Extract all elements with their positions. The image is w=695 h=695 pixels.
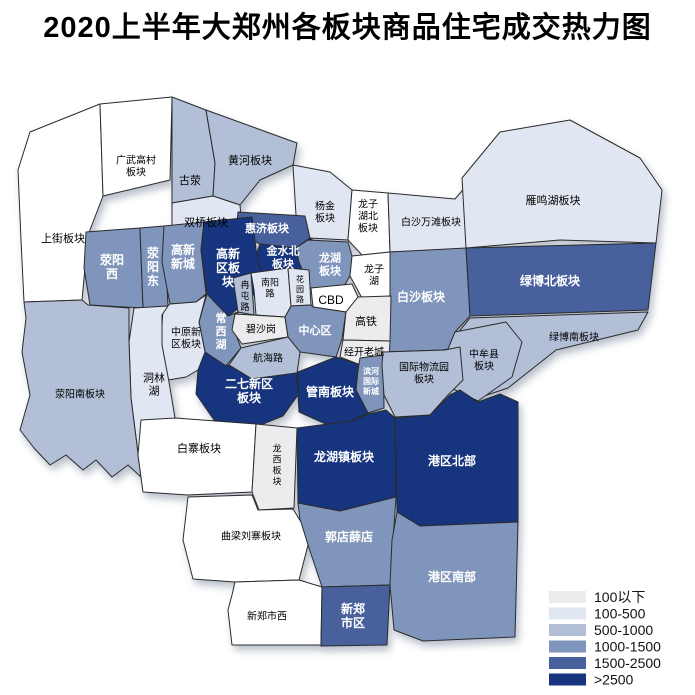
region-label-hanghailu: 航海路	[253, 352, 283, 365]
infographic-canvas: 2020上半年大郑州各板块商品住宅成交热力图 上街板块广武高村板块古荥黄河板块双…	[0, 0, 695, 695]
region-label-gangqubeibu: 港区北部	[428, 453, 476, 468]
legend: 100以下100-500500-10001000-15001500-2500>2…	[549, 589, 661, 688]
region-label-xingyangnan: 荥阳南板块	[55, 388, 105, 401]
region-label-baizhai: 白寨板块	[177, 441, 221, 455]
region-baizhai	[138, 418, 256, 495]
legend-swatch-5	[549, 674, 586, 686]
region-label-changxihu: 常西湖	[216, 311, 227, 351]
region-xingyangnan	[20, 300, 141, 477]
region-label-binhe: 滨河国际新城	[363, 366, 379, 396]
region-label-huayuanlu: 花园路	[296, 274, 304, 304]
legend-label-5: >2500	[594, 672, 634, 688]
region-label-huanghe: 黄河板块	[228, 153, 272, 167]
region-label-bishagang: 碧沙岗	[246, 324, 276, 336]
region-label-longxi: 龙西板块	[272, 443, 281, 487]
zhengzhou-heatmap: 上街板块广武高村板块古荥黄河板块双桥板块杨金板块龙子湖北板块白沙万滩板块雁鸣湖板…	[0, 0, 695, 695]
region-label-qumeliuzhai: 曲梁刘寨板块	[221, 530, 281, 543]
region-label-longhu: 龙湖板块	[318, 250, 342, 277]
region-label-rantunlu: 冉屯路	[240, 279, 249, 312]
regions-layer	[18, 97, 662, 646]
region-label-xinzhengshixi: 新郑市西	[247, 610, 287, 623]
region-label-yangjin: 杨金板块	[315, 200, 335, 225]
legend-swatch-3	[549, 641, 586, 653]
legend-swatch-1	[549, 608, 586, 620]
region-label-baisha: 白沙板块	[397, 289, 446, 304]
region-label-lvbonan: 绿博南板块	[549, 331, 599, 344]
legend-label-4: 1500-2500	[594, 655, 661, 671]
legend-swatch-2	[549, 624, 586, 636]
region-yanminghu	[462, 120, 662, 248]
region-label-xinzhengshiqu: 新郑市区	[341, 601, 365, 630]
region-label-longhuzhen: 龙湖镇板块	[314, 449, 375, 464]
region-label-lvbobei: 绿博北板块	[520, 273, 581, 288]
region-label-yanminghu: 雁鸣湖板块	[526, 193, 581, 207]
legend-label-1: 100-500	[594, 606, 646, 622]
region-label-guannan: 管南板块	[306, 384, 355, 399]
region-label-longzihubei: 龙子湖北板块	[358, 198, 378, 235]
legend-swatch-4	[549, 657, 586, 669]
legend-label-0: 100以下	[594, 589, 645, 605]
region-label-zhongxinqu: 中心区	[299, 323, 332, 337]
region-label-zhongyuanxinqu: 中原新区板块	[171, 326, 201, 351]
region-label-gangqunanbu: 港区南部	[428, 569, 476, 584]
legend-label-2: 500-1000	[594, 622, 653, 638]
region-label-huiji: 惠济板块	[245, 221, 290, 235]
region-label-gaotie: 高铁	[355, 314, 377, 328]
region-label-shangjie: 上街板块	[41, 231, 85, 245]
region-label-jingkailaocheng: 经开老城	[344, 346, 384, 359]
region-label-xingyangdong: 荥阳东	[147, 245, 159, 288]
region-label-guying: 古荥	[179, 173, 201, 187]
legend-swatch-0	[549, 591, 586, 603]
region-label-gaoxinxincheng: 高新新城	[171, 242, 195, 271]
region-label-shuangqiao: 双桥板块	[184, 215, 228, 229]
region-guangwugaocun	[100, 97, 172, 196]
region-label-cbd: CBD	[318, 293, 344, 307]
region-label-baishawantan: 白沙万滩板块	[401, 216, 461, 229]
region-label-guodianxuedian: 郭店薛店	[325, 529, 373, 544]
legend-label-3: 1000-1500	[594, 639, 661, 655]
